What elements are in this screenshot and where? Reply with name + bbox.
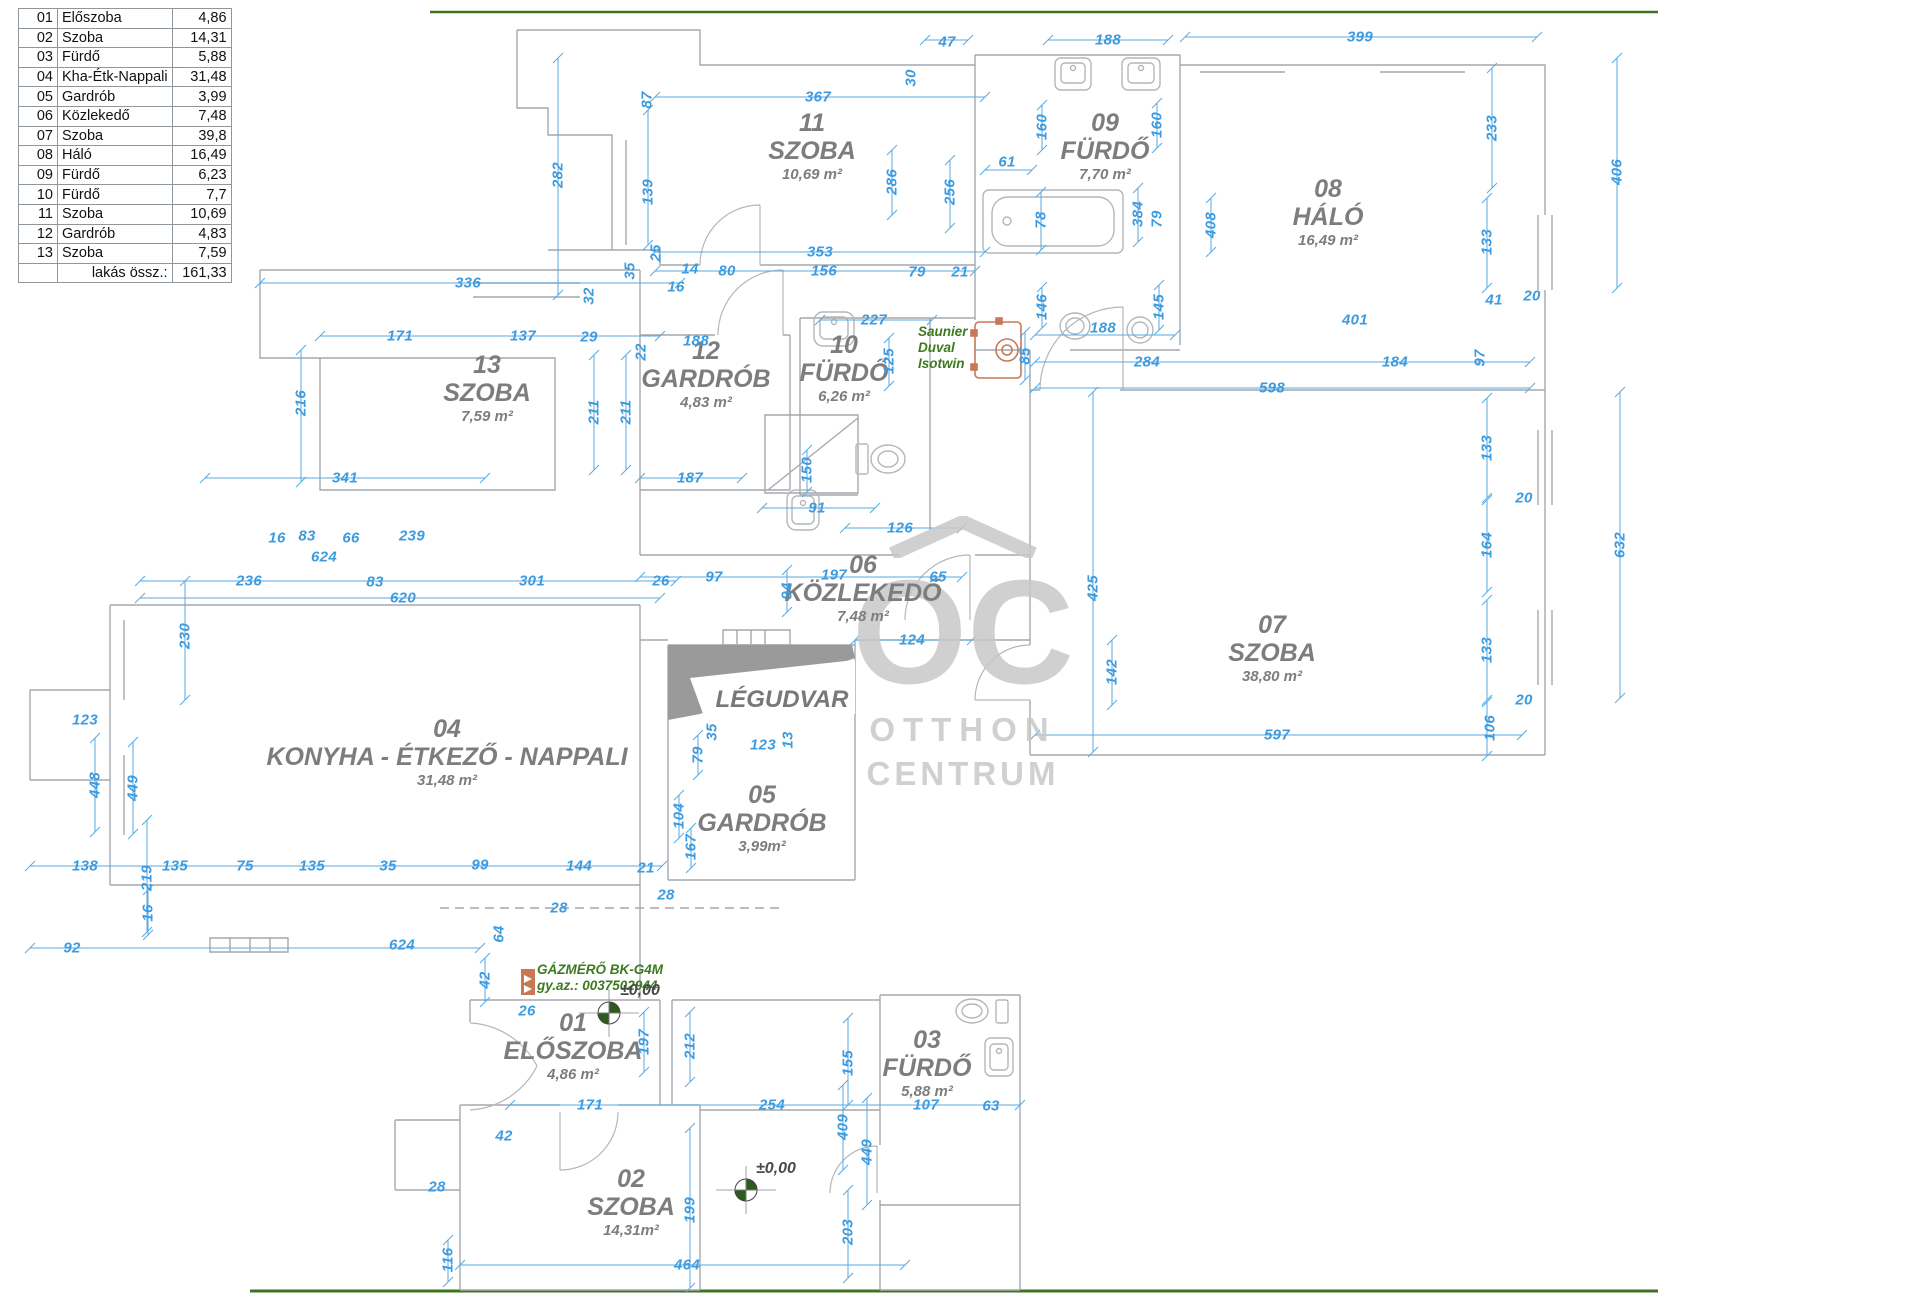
table-cell: 03 <box>19 48 58 68</box>
dimension-label: 21 <box>637 860 654 877</box>
legudvar-label: LÉGUDVAR <box>716 686 849 714</box>
dimension-label: 401 <box>1342 312 1368 329</box>
dimension-label: 282 <box>550 162 567 188</box>
dimension-label: 399 <box>1347 29 1373 46</box>
dimension-label: 236 <box>236 573 262 590</box>
table-cell: 13 <box>19 244 58 264</box>
dimension-label: 286 <box>884 169 901 195</box>
dimension-label: 239 <box>399 528 425 545</box>
level-marker-label: ±0,00 <box>620 982 660 1000</box>
dimension-label: 64 <box>491 925 508 942</box>
dimension-label: 336 <box>455 275 481 292</box>
floorplan-drawing <box>0 0 1920 1302</box>
room-label-nm: SZOBA <box>443 379 531 407</box>
dimension-label: 25 <box>648 244 665 261</box>
dimension-label: 63 <box>982 1098 999 1115</box>
room-label-num: 13 <box>443 352 531 379</box>
dimension-label: 47 <box>938 34 955 51</box>
room-label-nm: ELŐSZOBA <box>504 1037 643 1065</box>
room-label-ar: 16,49 m² <box>1293 231 1364 251</box>
dimension-label: 199 <box>682 1197 699 1223</box>
dimension-label: 160 <box>1034 114 1051 140</box>
table-row: 04Kha-Étk-Nappali31,48 <box>19 67 232 87</box>
table-row: 06Közlekedő7,48 <box>19 106 232 126</box>
table-cell: 06 <box>19 106 58 126</box>
room-label-nm: FÜRDŐ <box>800 359 889 387</box>
room-label-ar: 7,70 m² <box>1061 165 1150 185</box>
room-label-ar: 4,86 m² <box>504 1065 643 1085</box>
dimension-label: 124 <box>899 632 925 649</box>
room-label-ar: 10,69 m² <box>768 165 856 185</box>
dimension-label: 28 <box>428 1179 445 1196</box>
dimension-label: 94 <box>779 582 796 599</box>
gas-meter-icon <box>521 969 535 995</box>
table-cell: Kha-Étk-Nappali <box>58 67 173 87</box>
dimension-label: 13 <box>780 731 797 748</box>
room-label: 06KÖZLEKEDŐ7,48 m² <box>785 552 942 627</box>
table-cell: Gardrób <box>58 224 173 244</box>
room-label: 04KONYHA - ÉTKEZŐ - NAPPALI31,48 m² <box>266 716 627 791</box>
room-label-num: 07 <box>1228 612 1316 639</box>
room-label-num: 02 <box>587 1166 675 1193</box>
room-label-ar: 7,48 m² <box>785 607 942 627</box>
dimension-label: 83 <box>298 528 315 545</box>
room-label-ar: 3,99m² <box>697 837 826 857</box>
dimension-label: 284 <box>1134 354 1160 371</box>
dimension-label: 448 <box>87 772 104 798</box>
dimension-label: 97 <box>705 569 722 586</box>
table-row: 01Előszoba4,86 <box>19 9 232 29</box>
dimension-label: 42 <box>477 971 494 988</box>
green-annotation-line: GÁZMÉRŐ BK-G4M <box>537 962 663 978</box>
dimension-label: 197 <box>821 567 847 584</box>
dimension-label: 188 <box>683 333 709 350</box>
dimension-label: 116 <box>440 1248 457 1273</box>
dimension-label: 123 <box>750 737 776 754</box>
room-label-ar: 31,48 m² <box>266 771 627 791</box>
table-cell: 7,7 <box>172 185 231 205</box>
dimension-label: 597 <box>1264 727 1290 744</box>
dimension-label: 92 <box>63 940 80 957</box>
room-label: 13SZOBA7,59 m² <box>443 352 531 427</box>
dimension-label: 26 <box>518 1003 535 1020</box>
dimension-label: 156 <box>811 263 837 280</box>
dimension-label: 75 <box>236 858 253 875</box>
dimension-label: 624 <box>311 549 337 566</box>
room-label-nm: GARDRÓB <box>697 809 826 837</box>
dimension-label: 227 <box>861 312 887 329</box>
room-label-ar: 4,83 m² <box>641 393 770 413</box>
room-label: 11SZOBA10,69 m² <box>768 110 856 185</box>
dimension-label: 20 <box>1523 288 1540 305</box>
table-row: 13Szoba7,59 <box>19 244 232 264</box>
table-total-row: lakás össz.:161,33 <box>19 263 232 283</box>
dimension-label: 79 <box>690 746 707 763</box>
table-cell: 161,33 <box>172 263 231 283</box>
dimension-label: 22 <box>633 343 650 360</box>
green-annotation-line: Saunier <box>918 324 968 340</box>
room-label: 05GARDRÓB3,99m² <box>697 782 826 857</box>
dimension-label: 14 <box>681 261 698 278</box>
dimension-label: 142 <box>1104 659 1121 685</box>
dimension-label: 256 <box>942 179 959 205</box>
dimension-label: 79 <box>1149 210 1166 227</box>
dimension-label: 409 <box>835 1114 852 1140</box>
room-label-num: 09 <box>1061 110 1150 137</box>
room-label-num: 06 <box>785 552 942 579</box>
floorplan-page: OC OTTHON CENTRUM 01Előszoba4,8602Szoba1… <box>0 0 1920 1302</box>
dimension-label: 20 <box>1515 490 1532 507</box>
table-cell: 7,48 <box>172 106 231 126</box>
table-cell: 5,88 <box>172 48 231 68</box>
dimension-label: 123 <box>72 712 98 729</box>
table-cell: 3,99 <box>172 87 231 107</box>
dimension-label: 61 <box>998 154 1015 171</box>
table-cell: Közlekedő <box>58 106 173 126</box>
table-cell <box>19 263 58 283</box>
table-cell: 31,48 <box>172 67 231 87</box>
dimension-label: 632 <box>1612 532 1629 558</box>
table-cell: 4,86 <box>172 9 231 29</box>
dimension-label: 29 <box>580 329 597 346</box>
table-cell: lakás össz.: <box>58 263 173 283</box>
room-label-num: 08 <box>1293 176 1364 203</box>
dimension-label: 35 <box>379 858 396 875</box>
dimension-label: 219 <box>139 865 156 891</box>
dimension-label: 97 <box>1472 349 1489 366</box>
table-cell: Szoba <box>58 28 173 48</box>
dimension-label: 126 <box>887 520 913 537</box>
dimension-label: 21 <box>951 264 968 281</box>
dimension-label: 80 <box>718 263 735 280</box>
dimension-label: 449 <box>125 775 142 801</box>
dimension-label: 138 <box>72 858 98 875</box>
table-cell: 01 <box>19 9 58 29</box>
dimension-label: 106 <box>1482 715 1499 741</box>
table-row: 05Gardrób3,99 <box>19 87 232 107</box>
room-label-nm: HÁLÓ <box>1293 203 1364 231</box>
dimension-label: 464 <box>674 1257 700 1274</box>
dimension-label: 146 <box>1034 294 1051 320</box>
dimension-label: 35 <box>622 262 639 279</box>
dimension-label: 145 <box>1151 294 1168 320</box>
table-cell: 08 <box>19 146 58 166</box>
dimension-label: 160 <box>1149 112 1166 138</box>
dimension-label: 171 <box>577 1097 603 1114</box>
room-label: 02SZOBA14,31m² <box>587 1166 675 1241</box>
table-cell: 14,31 <box>172 28 231 48</box>
dimension-label: 99 <box>471 857 488 874</box>
table-cell: 05 <box>19 87 58 107</box>
dimension-label: 598 <box>1259 380 1285 397</box>
dimension-label: 78 <box>1033 211 1050 228</box>
dimension-label: 367 <box>805 89 831 106</box>
dimension-label: 188 <box>1095 32 1121 49</box>
dimension-label: 32 <box>581 287 598 304</box>
room-label-num: 11 <box>768 110 856 137</box>
bathtub <box>983 190 1123 253</box>
dimension-label: 28 <box>550 900 567 917</box>
area-table: 01Előszoba4,8602Szoba14,3103Fürdő5,8804K… <box>18 8 232 283</box>
dimension-label: 16 <box>667 279 684 296</box>
table-row: 12Gardrób4,83 <box>19 224 232 244</box>
dimension-label: 620 <box>390 590 416 607</box>
dimension-label: 35 <box>704 723 721 740</box>
dimension-label: 66 <box>342 530 359 547</box>
table-cell: Szoba <box>58 126 173 146</box>
dimension-label: 184 <box>1382 354 1408 371</box>
dimension-label: 216 <box>293 390 310 416</box>
dimension-label: 104 <box>671 803 688 829</box>
room-label-ar: 7,59 m² <box>443 407 531 427</box>
room-label-nm: FÜRDŐ <box>1061 137 1150 165</box>
table-cell: Háló <box>58 146 173 166</box>
round-sink-icon <box>1127 317 1153 343</box>
dimension-label: 212 <box>682 1033 699 1059</box>
room-label: 08HÁLÓ16,49 m² <box>1293 176 1364 251</box>
dimension-label: 353 <box>807 244 833 261</box>
dimension-label: 164 <box>1479 532 1496 558</box>
toilet-icon <box>956 999 988 1023</box>
dimension-label: 133 <box>1479 435 1496 461</box>
dimension-label: 41 <box>1485 292 1502 309</box>
table-cell: 6,23 <box>172 165 231 185</box>
table-cell: Szoba <box>58 204 173 224</box>
dimension-label: 406 <box>1609 159 1626 185</box>
dimension-label: 171 <box>387 328 413 345</box>
room-label-nm: SZOBA <box>587 1193 675 1221</box>
dimension-label: 28 <box>657 887 674 904</box>
table-cell: 4,83 <box>172 224 231 244</box>
dimension-label: 83 <box>366 574 383 591</box>
dimension-label: 341 <box>332 470 358 487</box>
room-label-nm: KONYHA - ÉTKEZŐ - NAPPALI <box>266 743 627 771</box>
room-label-nm: GARDRÓB <box>641 365 770 393</box>
dimension-label: 87 <box>639 91 656 108</box>
level-marker-label: ±0,00 <box>756 1160 796 1178</box>
dimension-label: 65 <box>929 569 946 586</box>
dimension-label: 187 <box>677 470 703 487</box>
dimension-label: 425 <box>1085 575 1102 601</box>
dimension-label: 16 <box>140 904 157 921</box>
table-cell: 10 <box>19 185 58 205</box>
room-label: 01ELŐSZOBA4,86 m² <box>504 1010 643 1085</box>
table-cell: 7,59 <box>172 244 231 264</box>
dimension-label: 85 <box>1017 347 1034 364</box>
room-label-nm: FÜRDŐ <box>883 1054 972 1082</box>
dimension-label: 203 <box>840 1219 857 1245</box>
dimension-label: 408 <box>1203 212 1220 238</box>
dimension-label: 42 <box>495 1128 512 1145</box>
table-cell: Fürdő <box>58 48 173 68</box>
dimension-label: 107 <box>913 1097 939 1114</box>
dimension-label: 624 <box>389 937 415 954</box>
room-label: 10FÜRDŐ6,26 m² <box>800 332 889 407</box>
table-row: 11Szoba10,69 <box>19 204 232 224</box>
dimension-label: 137 <box>510 328 536 345</box>
dimension-label: 135 <box>162 858 188 875</box>
table-cell: 04 <box>19 67 58 87</box>
room-label-ar: 14,31m² <box>587 1221 675 1241</box>
dimension-label: 91 <box>808 500 825 517</box>
dimension-label: 167 <box>683 834 700 860</box>
dimension-label: 211 <box>618 400 635 425</box>
room-label-ar: 38,80 m² <box>1228 667 1316 687</box>
room-label-num: 04 <box>266 716 627 743</box>
table-cell: 39,8 <box>172 126 231 146</box>
dimension-label: 135 <box>299 858 325 875</box>
dimension-label: 20 <box>1515 692 1532 709</box>
table-cell: Előszoba <box>58 9 173 29</box>
dimension-label: 79 <box>908 264 925 281</box>
room-label: 07SZOBA38,80 m² <box>1228 612 1316 687</box>
dimension-label: 230 <box>177 623 194 649</box>
table-cell: 16,49 <box>172 146 231 166</box>
dimension-label: 301 <box>519 573 545 590</box>
toilet-icon <box>871 445 905 473</box>
room-label-nm: SZOBA <box>768 137 856 165</box>
dimension-label: 30 <box>903 69 920 86</box>
dimension-label: 144 <box>566 858 592 875</box>
dimension-label: 211 <box>586 400 603 425</box>
table-cell: 11 <box>19 204 58 224</box>
table-row: 02Szoba14,31 <box>19 28 232 48</box>
table-row: 07Szoba39,8 <box>19 126 232 146</box>
room-label: 03FÜRDŐ5,88 m² <box>883 1027 972 1102</box>
table-cell: Fürdő <box>58 185 173 205</box>
room-label-num: 10 <box>800 332 889 359</box>
dimension-label: 155 <box>840 1050 857 1076</box>
room-label-num: 05 <box>697 782 826 809</box>
dimension-label: 384 <box>1130 201 1147 227</box>
room-label-num: 03 <box>883 1027 972 1054</box>
room-label: 09FÜRDŐ7,70 m² <box>1061 110 1150 185</box>
table-cell: 09 <box>19 165 58 185</box>
table-cell: 12 <box>19 224 58 244</box>
table-cell: 02 <box>19 28 58 48</box>
room-label-nm: KÖZLEKEDŐ <box>785 579 942 607</box>
table-cell: Gardrób <box>58 87 173 107</box>
table-row: 03Fürdő5,88 <box>19 48 232 68</box>
dimension-label: 133 <box>1479 229 1496 255</box>
dimension-label: 125 <box>881 348 898 374</box>
table-row: 09Fürdő6,23 <box>19 165 232 185</box>
dimension-label: 139 <box>640 179 657 205</box>
table-cell: Fürdő <box>58 165 173 185</box>
table-cell: 10,69 <box>172 204 231 224</box>
room-label-ar: 6,26 m² <box>800 387 889 407</box>
green-annotation-line: Duval <box>918 340 968 356</box>
table-row: 08Háló16,49 <box>19 146 232 166</box>
table-row: 10Fürdő7,7 <box>19 185 232 205</box>
dimension-label: 16 <box>268 530 285 547</box>
dimension-label: 133 <box>1479 637 1496 663</box>
dimension-label: 150 <box>799 457 816 483</box>
green-annotation-line: Isotwin <box>918 356 968 372</box>
dimension-label: 254 <box>759 1097 785 1114</box>
dimension-label: 26 <box>652 573 669 590</box>
dimension-label: 449 <box>859 1139 876 1165</box>
dimension-label: 188 <box>1090 320 1116 337</box>
dimension-label: 197 <box>636 1029 653 1055</box>
table-cell: 07 <box>19 126 58 146</box>
room-label-nm: SZOBA <box>1228 639 1316 667</box>
dimension-label: 233 <box>1484 115 1501 141</box>
green-annotation: SaunierDuvalIsotwin <box>918 324 968 372</box>
table-cell: Szoba <box>58 244 173 264</box>
